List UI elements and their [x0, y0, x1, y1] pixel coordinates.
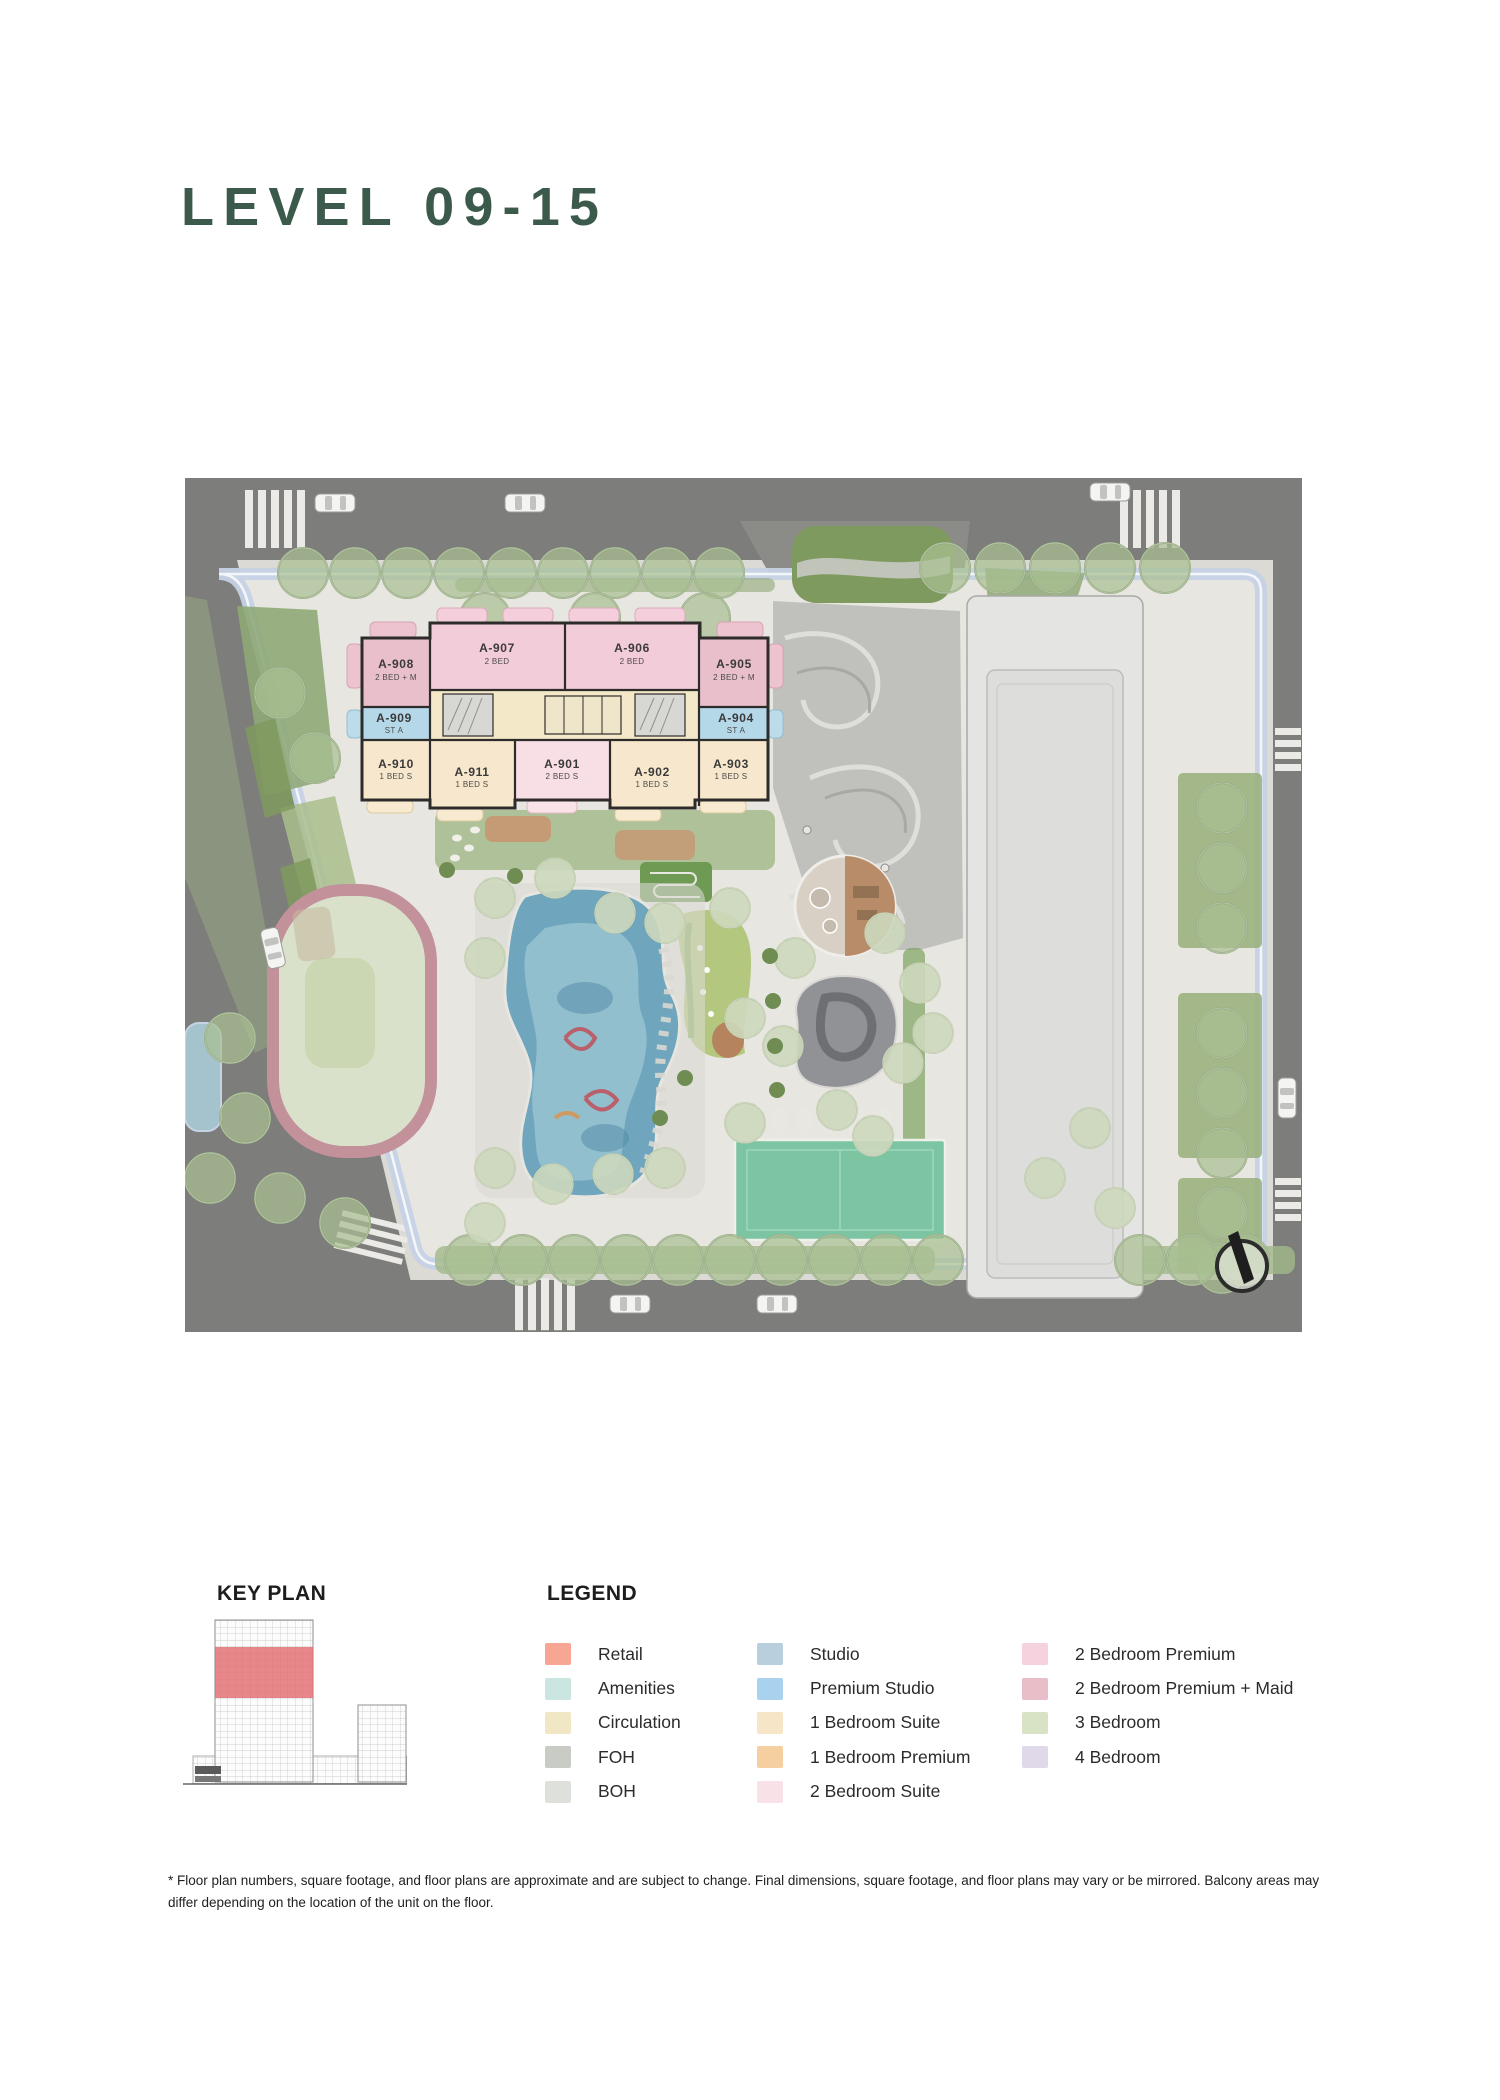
legend-swatch: [1022, 1746, 1048, 1768]
running-track: [273, 890, 431, 1152]
legend-label: Amenities: [598, 1678, 675, 1699]
legend-column-2: Studio Premium Studio 1 Bedroom Suite 1 …: [757, 1637, 970, 1809]
unit-label-id: A-906: [614, 641, 650, 655]
legend-item: BOH: [545, 1775, 681, 1809]
legend-label: FOH: [598, 1747, 635, 1768]
playground-sculpture: [796, 976, 897, 1088]
legend-column-1: Retail Amenities Circulation FOH BOH: [545, 1637, 681, 1809]
legend-title: LEGEND: [547, 1582, 637, 1606]
legend-label: 2 Bedroom Premium + Maid: [1075, 1678, 1293, 1699]
site-plan: A-908 2 BED + M A-907 2 BED A-906 2 BED …: [185, 478, 1302, 1332]
legend-item: Studio: [757, 1637, 970, 1671]
unit-label-sub: 2 BED: [620, 657, 645, 666]
unit-label-sub: 2 BED + M: [713, 673, 755, 682]
legend-label: 1 Bedroom Suite: [810, 1712, 940, 1733]
legend-label: 2 Bedroom Premium: [1075, 1644, 1235, 1665]
legend-item: Retail: [545, 1637, 681, 1671]
legend-item: 2 Bedroom Premium + Maid: [1022, 1671, 1293, 1705]
level-highlight-band: [215, 1647, 313, 1698]
legend-swatch: [545, 1643, 571, 1665]
legend-label: Studio: [810, 1644, 860, 1665]
legend-label: 4 Bedroom: [1075, 1747, 1161, 1768]
unit-label-id: A-901: [544, 757, 580, 771]
legend-swatch: [545, 1746, 571, 1768]
unit-label-sub: 2 BED: [485, 657, 510, 666]
unit-label-id: A-911: [454, 765, 489, 779]
legend-swatch: [545, 1781, 571, 1803]
legend-item: FOH: [545, 1740, 681, 1774]
legend-item: 2 Bedroom Suite: [757, 1775, 970, 1809]
legend-label: BOH: [598, 1781, 636, 1802]
unit-label-sub: 2 BED S: [546, 772, 579, 781]
legend-label: 3 Bedroom: [1075, 1712, 1161, 1733]
legend-label: 2 Bedroom Suite: [810, 1781, 940, 1802]
unit-label-id: A-907: [479, 641, 515, 655]
unit-label-id: A-908: [378, 657, 414, 671]
legend-item: 4 Bedroom: [1022, 1740, 1293, 1774]
elevation-detail: [195, 1776, 221, 1782]
legend-item: 3 Bedroom: [1022, 1706, 1293, 1740]
unit-label-id: A-905: [716, 657, 752, 671]
legend-swatch: [757, 1781, 783, 1803]
unit-label-id: A-904: [718, 711, 754, 725]
annex-elevation: [358, 1705, 406, 1782]
residential-building: A-908 2 BED + M A-907 2 BED A-906 2 BED …: [347, 608, 783, 821]
legend-item: Circulation: [545, 1706, 681, 1740]
legend-item: Amenities: [545, 1671, 681, 1705]
legend-item: 1 Bedroom Suite: [757, 1706, 970, 1740]
key-plan-title: KEY PLAN: [217, 1582, 326, 1606]
legend-swatch: [757, 1643, 783, 1665]
legend-swatch: [1022, 1712, 1048, 1734]
legend-label: Retail: [598, 1644, 643, 1665]
legend-item: 1 Bedroom Premium: [757, 1740, 970, 1774]
legend-label: Premium Studio: [810, 1678, 935, 1699]
legend-label: Circulation: [598, 1712, 681, 1733]
unit-label-sub: 2 BED + M: [375, 673, 417, 682]
unit-label-sub: 1 BED S: [456, 780, 489, 789]
legend-label: 1 Bedroom Premium: [810, 1747, 970, 1768]
elevation-detail: [195, 1766, 221, 1774]
unit-label-sub: 1 BED S: [380, 772, 413, 781]
stair-cores: [443, 694, 685, 736]
unit-label-sub: 1 BED S: [715, 772, 748, 781]
tower-elevation: [215, 1620, 313, 1782]
floor-plan-page: LEVEL 09-15: [0, 0, 1500, 2100]
unit-label-id: A-910: [378, 757, 414, 771]
unit-label-id: A-902: [634, 765, 670, 779]
footnote: * Floor plan numbers, square footage, an…: [168, 1870, 1343, 1915]
legend-swatch: [545, 1712, 571, 1734]
legend-swatch: [545, 1678, 571, 1700]
unit-label-sub: 1 BED S: [636, 780, 669, 789]
unit-label-sub: ST A: [727, 726, 746, 735]
legend-swatch: [757, 1678, 783, 1700]
legend-swatch: [757, 1712, 783, 1734]
page-title: LEVEL 09-15: [181, 176, 608, 238]
unit-label-id: A-909: [376, 711, 412, 725]
unit-label-id: A-903: [713, 757, 749, 771]
key-plan-drawing: [183, 1608, 407, 1792]
legend-column-3: 2 Bedroom Premium 2 Bedroom Premium + Ma…: [1022, 1637, 1293, 1775]
legend-item: 2 Bedroom Premium: [1022, 1637, 1293, 1671]
legend-swatch: [1022, 1678, 1048, 1700]
legend-item: Premium Studio: [757, 1671, 970, 1705]
legend-swatch: [757, 1746, 783, 1768]
unit-label-sub: ST A: [385, 726, 404, 735]
legend-swatch: [1022, 1643, 1048, 1665]
